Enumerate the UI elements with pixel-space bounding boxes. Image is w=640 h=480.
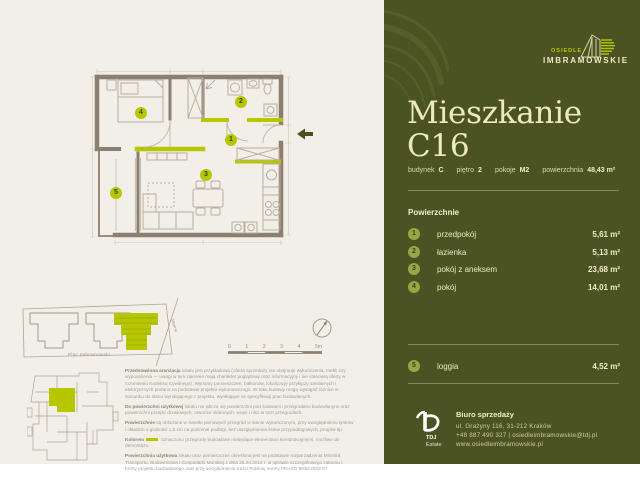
detail-rooms: pokoje M2: [495, 167, 529, 174]
room-area: 5,13 m²: [592, 248, 620, 257]
estate-building-icon: [578, 32, 618, 59]
room-area: 5,61 m²: [592, 230, 620, 239]
furniture: [107, 78, 280, 233]
room-number-badge: 2: [408, 246, 420, 258]
tdj-estate-logo-icon: [414, 409, 444, 434]
divider: [408, 190, 619, 191]
estate-name-small: OSIEDLE: [551, 48, 582, 54]
entrance-arrow-icon: [297, 129, 313, 140]
detail-building: budynek C: [408, 167, 444, 174]
detail-floor: piętro 2: [457, 167, 482, 174]
compass-icon: [306, 312, 338, 344]
sales-office-phone-email: +48 887 490 327 | osiedleimbramowskie@td…: [456, 432, 597, 439]
scale-bar: 0 1 2 3 4 5m: [228, 344, 322, 354]
highlighted-unit: [49, 388, 75, 412]
scale-labels: 0 1 2 3 4 5m: [228, 344, 322, 350]
tdj-brand-line1: TDJ: [426, 435, 436, 441]
phone-link[interactable]: +48 887 490 327: [456, 432, 506, 439]
plan-room-marker-1: 1: [225, 134, 237, 146]
disclaimer-paragraph: Przedstawiona aranżacja lokalu jest przy…: [125, 368, 354, 400]
room-area: 4,52 m²: [592, 362, 620, 371]
website-link[interactable]: www.osiedleimbramowskie.pl: [456, 441, 543, 448]
room-number-badge: 1: [408, 228, 420, 240]
room-number-badge: 5: [408, 360, 420, 372]
plan-room-marker-2: 2: [235, 96, 247, 108]
scale-segments: [228, 351, 322, 354]
detail-area: powierzchnia 48,43 m²: [542, 167, 615, 174]
highlighted-building: [114, 313, 158, 350]
disclaimer-text: Przedstawiona aranżacja lokalu jest przy…: [125, 368, 354, 476]
disclaimer-paragraph: Kolorem oznaczono przegrody budowlane ni…: [125, 437, 354, 450]
disclaimer-paragraph: Do powierzchni użytkowej lokalu nie wlic…: [125, 404, 354, 417]
divider: [408, 344, 619, 345]
page-title: Mieszkanie C16: [407, 97, 640, 163]
area-row-lazienka: 2 łazienka 5,13 m²: [408, 246, 620, 260]
room-label: loggia: [437, 362, 458, 371]
floorplan-drawing: [85, 63, 315, 253]
areas-heading: Powierzchnie: [408, 208, 459, 217]
street-label: Siewna: [170, 318, 179, 333]
disclaimer-paragraph: Powierzchnie są obliczane w świetle pion…: [125, 420, 354, 433]
room-number-badge: 4: [408, 281, 420, 293]
accent-color-swatch: [146, 438, 158, 442]
area-row-loggia: 5 loggia 4,52 m²: [408, 360, 620, 374]
room-label: łazienka: [437, 248, 466, 257]
dimension-lines: [90, 69, 291, 245]
highlighted-walls: [137, 120, 281, 162]
site-plan-place-label: Plac Imbramowski: [68, 352, 110, 357]
disclaimer-paragraph: Powierzchnia użytkowa lokalu oraz pomies…: [125, 453, 354, 472]
area-row-pokoj-z-aneksem: 3 pokój z aneksem 23,68 m²: [408, 263, 620, 277]
tdj-brand-line2: Estate: [426, 442, 442, 448]
apartment-details: budynek C piętro 2 pokoje M2 powierzchni…: [408, 167, 615, 174]
area-row-pokoj: 4 pokój 14,01 m²: [408, 281, 620, 295]
room-label: pokój: [437, 283, 456, 292]
room-number-badge: 3: [408, 263, 420, 275]
room-label: przedpokój: [437, 230, 476, 239]
flyer-page: OSIEDLE IMBRAMOWSKIE Mieszkanie C16 budy…: [0, 0, 640, 480]
plan-room-marker-3: 3: [200, 169, 212, 181]
plan-room-marker-4: 4: [135, 107, 147, 119]
area-row-przedpokoj: 1 przedpokój 5,61 m²: [408, 228, 620, 242]
email-link[interactable]: osiedleimbramowskie@tdj.pl: [512, 432, 597, 439]
plan-room-marker-5: 5: [110, 187, 122, 199]
divider: [408, 383, 619, 384]
storey-key-plan: [27, 372, 121, 464]
sales-office-address: ul. Grażyny 116, 31-212 Kraków: [456, 423, 551, 430]
room-area: 14,01 m²: [588, 283, 620, 292]
room-area: 23,68 m²: [588, 265, 620, 274]
sales-office-heading: Biuro sprzedaży: [456, 410, 514, 419]
outer-walls: [97, 77, 281, 235]
room-label: pokój z aneksem: [437, 265, 497, 274]
door-arcs: [144, 120, 281, 147]
estate-name-large: IMBRAMOWSKIE: [543, 56, 629, 65]
site-plan: Siewna: [20, 297, 202, 367]
